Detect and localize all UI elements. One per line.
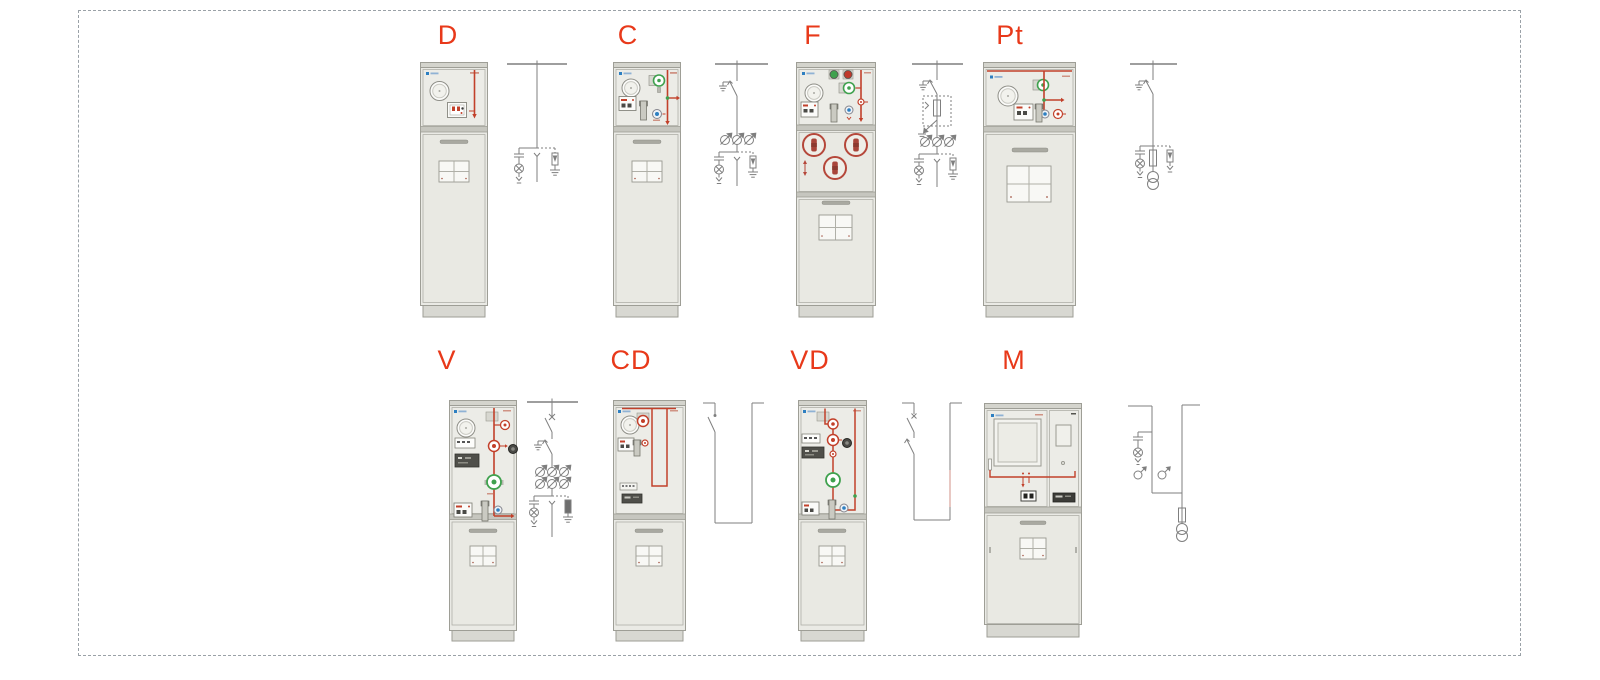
capacitor-lamp-branch	[1135, 146, 1145, 178]
inspection-window	[1007, 166, 1051, 202]
louver-slot	[635, 529, 663, 533]
capacitor-lamp-branch	[914, 154, 924, 185]
cable-plug-panel	[448, 103, 467, 118]
capacitor-lamp-branch	[1133, 432, 1152, 465]
current-transformers	[921, 135, 956, 146]
model-label	[1035, 414, 1043, 416]
current-transformers	[721, 133, 756, 144]
side-window	[1056, 425, 1071, 446]
control-panel	[619, 97, 636, 111]
relay-panel-dark	[1053, 493, 1075, 502]
louver-slot	[1012, 148, 1048, 152]
diagram-m-single-line	[1088, 392, 1206, 542]
inspection-window	[819, 546, 845, 566]
arrester-branch	[550, 148, 560, 175]
pressure-gauge-icon	[621, 416, 639, 434]
current-transformers-row2	[536, 477, 571, 488]
door-handle	[989, 459, 992, 470]
current-transformers-row1	[536, 465, 571, 476]
diagram-pt-single-line	[1100, 60, 1185, 192]
control-panel	[801, 102, 818, 117]
unit-label-d: D	[438, 22, 459, 49]
unit-label-v: V	[437, 347, 456, 374]
operating-lever	[481, 501, 489, 521]
arrester-branch	[563, 496, 573, 522]
diagram-cd-single-line	[695, 392, 765, 537]
keypad-panel	[620, 483, 637, 490]
unit-label-m: M	[1002, 347, 1026, 374]
relay-panel-dark	[455, 454, 479, 467]
diagram-vd-single-line	[898, 392, 968, 537]
switch-operator-green	[839, 83, 855, 94]
switch-operator-red	[637, 413, 649, 427]
load-break-switch	[1135, 80, 1153, 94]
louver-slot	[440, 140, 468, 144]
diagram-v-single-line	[498, 392, 582, 542]
switch-operator-green	[826, 473, 840, 487]
cabinet-cd-front	[612, 398, 687, 643]
inspection-window	[1020, 538, 1046, 559]
pressure-gauge-icon	[622, 79, 640, 97]
model-label	[670, 72, 677, 74]
disconnector	[905, 439, 915, 454]
control-panel	[454, 503, 472, 517]
inspection-window	[636, 546, 662, 566]
inspection-window	[819, 215, 852, 240]
operating-lever	[830, 104, 838, 122]
protection-display	[455, 438, 475, 448]
unit-label-pt: Pt	[996, 22, 1024, 49]
model-label	[864, 72, 871, 74]
disconnector-earth-switch	[534, 440, 552, 454]
cabinet-m-front	[983, 401, 1083, 639]
arrester-branch	[948, 154, 958, 179]
operating-lever	[828, 500, 836, 519]
load-break-switch	[719, 81, 737, 96]
selector-knob	[843, 439, 852, 448]
control-panel	[618, 438, 634, 451]
capacitor-lamp-branch	[714, 152, 724, 184]
pressure-gauge-icon	[805, 84, 823, 102]
vt-with-fuse	[1148, 146, 1159, 190]
unit-label-f: F	[804, 22, 822, 49]
control-panel	[1014, 104, 1033, 120]
operating-lever	[1035, 104, 1043, 122]
operating-lever	[640, 101, 648, 120]
louver-slot	[633, 140, 661, 144]
unit-label-c: C	[618, 22, 639, 49]
relay-panel-dark	[622, 494, 642, 503]
pressure-gauge-icon	[998, 86, 1018, 106]
arrester-branch	[1167, 146, 1173, 172]
louver-slot	[822, 201, 850, 205]
cabinet-vd-front	[797, 398, 868, 643]
unit-label-cd: CD	[611, 347, 652, 374]
cabinet-d-front	[419, 60, 489, 318]
model-label	[670, 410, 678, 412]
vt-with-fuse	[1177, 508, 1188, 542]
cabinet-c-front	[612, 60, 682, 318]
cable-plug-blue	[840, 504, 848, 512]
downstream-earth-switch	[918, 120, 937, 136]
switch-operator-green	[1033, 80, 1049, 91]
switchgear-catalog-page: D C F Pt V CD VD M	[0, 0, 1600, 680]
louver-slot	[469, 529, 497, 533]
model-label	[1062, 76, 1070, 78]
diagram-c-single-line	[692, 60, 772, 190]
protection-display	[802, 434, 820, 443]
inspection-window	[632, 161, 662, 182]
pressure-gauge-icon	[457, 419, 475, 437]
cabinet-f-front	[795, 60, 877, 318]
meter-viewing-window	[994, 419, 1041, 466]
inspection-window	[470, 546, 496, 566]
load-break-switch	[919, 80, 937, 94]
pressure-gauge-icon	[430, 82, 449, 101]
meter-display	[1021, 491, 1036, 501]
diagram-f-single-line	[880, 60, 970, 190]
louver-slot	[818, 529, 846, 533]
control-panel	[802, 502, 819, 515]
model-label	[853, 410, 861, 412]
circuit-breaker	[545, 414, 555, 439]
cabinet-pt-front	[982, 60, 1077, 318]
arrester-branch	[748, 152, 758, 177]
relay-panel-dark	[802, 447, 824, 458]
circuit-breaker	[907, 414, 917, 439]
inspection-window	[439, 161, 469, 182]
diagram-d-single-line	[503, 60, 573, 190]
disconnector	[708, 415, 716, 433]
capacitor-lamp-branch	[514, 148, 524, 183]
louver-slot	[1020, 521, 1046, 525]
capacitor-lamp-branch	[529, 496, 539, 527]
operating-lever	[633, 440, 641, 456]
unit-label-vd: VD	[790, 347, 830, 374]
